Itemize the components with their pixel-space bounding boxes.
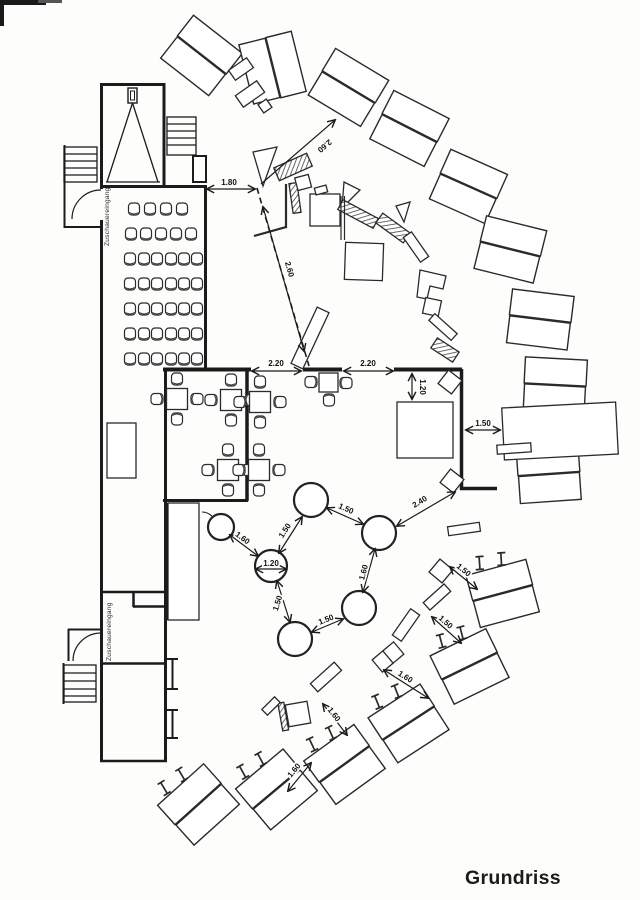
projection-cone <box>106 103 160 182</box>
audience-chair <box>166 278 177 290</box>
svg-text:1.60: 1.60 <box>396 669 414 685</box>
svg-text:1.50: 1.50 <box>475 419 491 428</box>
stage-room <box>106 88 160 182</box>
audience-chair <box>171 228 182 240</box>
svg-text:2.40: 2.40 <box>411 494 429 510</box>
prop-l-shape <box>417 270 446 299</box>
audience-chair <box>125 303 136 315</box>
audience-chair <box>179 353 190 365</box>
svg-text:2.60: 2.60 <box>283 261 296 279</box>
round-table <box>342 591 376 625</box>
audience-chair <box>179 253 190 265</box>
round-table <box>278 622 312 656</box>
audience-chair <box>139 278 150 290</box>
svg-text:1.80: 1.80 <box>221 178 237 187</box>
lectern <box>278 698 311 731</box>
table-pair <box>423 615 509 705</box>
dimension-stage-gap: 1.20 <box>412 374 427 399</box>
entrance-top <box>64 145 101 228</box>
dimension-circle-right: 1.60 <box>357 549 375 592</box>
double-stool <box>372 642 404 672</box>
audience-chair <box>125 353 136 365</box>
svg-text:2.20: 2.20 <box>268 359 284 368</box>
table-pair <box>226 737 318 830</box>
audience-chair <box>152 253 163 265</box>
audience-chair <box>139 303 150 315</box>
audience-chair <box>192 353 203 365</box>
audience-chair <box>166 328 177 340</box>
audience-chair <box>166 253 177 265</box>
stairs-top-right <box>167 117 206 182</box>
audience-chair <box>179 278 190 290</box>
audience-chair <box>192 328 203 340</box>
platform <box>193 156 206 182</box>
audience-chair <box>139 353 150 365</box>
dimension-restaurant-right: 2.20 <box>344 359 393 371</box>
audience-chair <box>129 203 140 215</box>
audience-chair <box>152 328 163 340</box>
audience-chair <box>125 278 136 290</box>
head-table <box>497 402 619 460</box>
door-swing-bottom <box>73 633 101 661</box>
door-marks <box>167 659 178 738</box>
entrance-bottom-label: Zuschauereingang <box>106 602 113 661</box>
audience-chair <box>166 303 177 315</box>
audience-chair <box>179 328 190 340</box>
audience-chair <box>141 228 152 240</box>
stairs-top-left <box>64 147 97 182</box>
dimension-circle-bottom: 1.50 <box>312 612 343 632</box>
svg-text:1.50: 1.50 <box>271 594 285 612</box>
svg-text:1.20: 1.20 <box>263 559 279 568</box>
audience-chair <box>145 203 156 215</box>
dimension-circle-topleft: 1.50 <box>277 517 302 553</box>
reception-desk <box>107 423 136 478</box>
round-table <box>294 483 328 517</box>
audience-chair <box>125 253 136 265</box>
audience-chair <box>186 228 197 240</box>
audience-chair <box>177 203 188 215</box>
entrance-bottom <box>64 629 102 704</box>
table-pair <box>160 15 242 96</box>
audience-chair <box>192 278 203 290</box>
restaurant-tables <box>151 373 286 496</box>
prop-plank <box>291 307 329 369</box>
page-title: Grundriss <box>465 867 561 889</box>
svg-text:1.20: 1.20 <box>418 379 427 395</box>
svg-text:1.50: 1.50 <box>277 521 293 539</box>
audience-chair <box>152 303 163 315</box>
dimension-head-table: 1.50 <box>466 419 500 430</box>
audience-chair <box>125 328 136 340</box>
audience-chair <box>139 328 150 340</box>
dimension-circle-bottomleft: 1.50 <box>271 581 290 622</box>
auditorium-seating <box>125 203 203 365</box>
table-pair <box>147 752 240 845</box>
audience-chair <box>161 203 172 215</box>
dance-floor <box>397 402 453 458</box>
dimension-entry-top: 1.80 <box>207 178 255 189</box>
svg-text:1.50: 1.50 <box>437 614 455 631</box>
svg-text:2.60: 2.60 <box>315 137 333 154</box>
audience-chair <box>156 228 167 240</box>
audience-chair <box>166 353 177 365</box>
table-pair <box>474 216 547 283</box>
table-pair <box>308 48 389 126</box>
audience-chair <box>126 228 137 240</box>
entrance-top-label: Zuschauereingang <box>104 187 111 246</box>
round-table <box>208 514 234 540</box>
wall-table <box>305 373 352 406</box>
dimension-circle-left: 1.60 <box>230 530 258 556</box>
table-pair <box>360 671 450 763</box>
dimension-corner-to-circle: 2.40 <box>397 492 455 526</box>
door-swing-top <box>72 190 101 219</box>
cafe-table <box>151 373 203 425</box>
floor-plan-drawing: 1.80 2.60 2.60 2.20 2.20 1.20 1.50 2.40 … <box>0 0 640 900</box>
audience-chair <box>152 353 163 365</box>
table-pair <box>506 289 574 350</box>
dimension-circle-top: 1.50 <box>327 501 363 524</box>
projector <box>128 88 137 103</box>
table-pair <box>429 149 508 224</box>
audience-chair <box>152 278 163 290</box>
svg-text:1.50: 1.50 <box>317 612 335 626</box>
stool <box>429 559 453 583</box>
cafe-table <box>234 376 286 428</box>
svg-text:1.60: 1.60 <box>326 706 343 724</box>
audience-chair <box>139 253 150 265</box>
svg-text:1.60: 1.60 <box>357 563 370 581</box>
svg-text:2.20: 2.20 <box>360 359 376 368</box>
floor-plan-page: 1.80 2.60 2.60 2.20 2.20 1.20 1.50 2.40 … <box>0 0 640 900</box>
audience-chair <box>192 303 203 315</box>
dimension-arc-s: 1.60 <box>323 704 347 735</box>
audience-chair <box>192 253 203 265</box>
stool <box>438 370 462 394</box>
round-table <box>362 516 396 550</box>
cafe-table <box>233 444 285 496</box>
scan-artifacts <box>0 0 62 26</box>
audience-chair <box>179 303 190 315</box>
table-pair <box>369 90 449 166</box>
